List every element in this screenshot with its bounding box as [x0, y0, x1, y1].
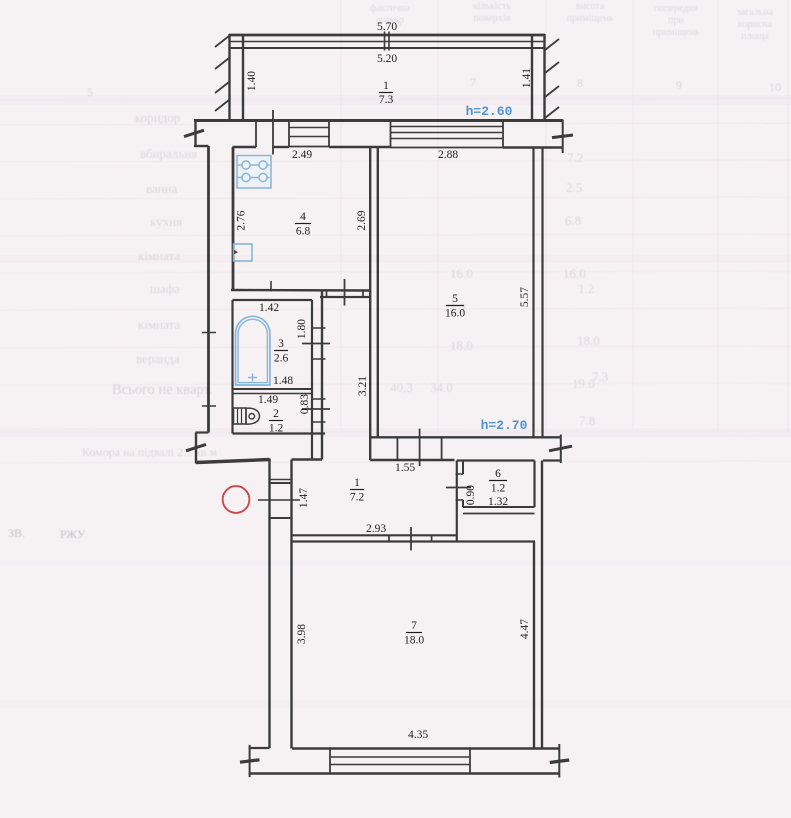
svg-text:1.48: 1.48 [273, 375, 293, 387]
svg-text:6.8: 6.8 [296, 226, 311, 238]
svg-text:1.42: 1.42 [259, 302, 279, 314]
svg-text:коридор: коридор [135, 110, 180, 125]
svg-text:приміщень: приміщень [567, 13, 614, 24]
svg-text:2.5: 2.5 [566, 180, 582, 195]
svg-text:16.0: 16.0 [445, 308, 465, 320]
svg-text:1.2: 1.2 [491, 483, 506, 495]
svg-text:шафа: шафа [150, 281, 180, 296]
svg-text:19.0: 19.0 [572, 376, 595, 391]
svg-text:0.90: 0.90 [465, 485, 477, 505]
svg-text:кількість: кількість [473, 1, 512, 12]
svg-text:фактична: фактична [370, 3, 411, 14]
svg-text:8: 8 [577, 76, 583, 90]
svg-text:вбиральня: вбиральня [140, 146, 197, 161]
svg-text:34.0: 34.0 [430, 380, 453, 395]
svg-text:висота: висота [576, 1, 605, 12]
svg-text:5.70: 5.70 [377, 21, 397, 33]
svg-text:1.2: 1.2 [269, 423, 284, 435]
svg-text:h=2.60: h=2.60 [466, 104, 513, 119]
svg-text:кімната: кімната [138, 317, 180, 332]
svg-text:кімната: кімната [138, 248, 180, 263]
svg-text:4: 4 [300, 211, 306, 223]
svg-text:0.83: 0.83 [299, 394, 311, 414]
svg-text:1.2: 1.2 [578, 281, 594, 296]
svg-text:1: 1 [383, 80, 389, 92]
svg-text:3.21: 3.21 [357, 376, 369, 396]
svg-text:2.6: 2.6 [274, 353, 289, 365]
svg-text:1.49: 1.49 [258, 394, 278, 406]
svg-text:2: 2 [273, 408, 279, 420]
svg-text:7.2: 7.2 [567, 150, 583, 165]
svg-text:5: 5 [452, 293, 458, 305]
svg-text:Всього не кварт.: Всього не кварт. [112, 382, 212, 398]
svg-text:7: 7 [470, 75, 476, 89]
svg-text:3.98: 3.98 [296, 624, 308, 644]
svg-text:поверхів: поверхів [474, 13, 511, 24]
svg-text:5.57: 5.57 [519, 287, 531, 307]
svg-text:5: 5 [87, 85, 93, 99]
svg-text:6: 6 [495, 468, 501, 480]
svg-text:площа: площа [741, 31, 769, 42]
svg-text:4.47: 4.47 [519, 619, 531, 639]
svg-text:4.35: 4.35 [408, 729, 428, 741]
svg-text:18.0: 18.0 [577, 333, 600, 348]
svg-text:9: 9 [676, 78, 682, 92]
svg-text:при: при [668, 15, 684, 26]
svg-text:40,3: 40,3 [390, 380, 413, 395]
svg-text:РЖУ: РЖУ [60, 527, 86, 541]
svg-text:ванна: ванна [146, 181, 178, 196]
svg-text:7.3: 7.3 [379, 94, 394, 106]
svg-text:веранда: веранда [136, 351, 180, 366]
svg-text:ЗВ.: ЗВ. [8, 526, 25, 540]
svg-text:1.32: 1.32 [488, 496, 508, 508]
svg-text:5.20: 5.20 [377, 53, 397, 65]
svg-text:1.41: 1.41 [521, 68, 533, 88]
svg-text:2.49: 2.49 [292, 149, 312, 161]
svg-text:попередня: попередня [654, 3, 699, 14]
svg-text:1.47: 1.47 [298, 488, 310, 508]
svg-text:18.0: 18.0 [404, 635, 424, 647]
svg-text:16.0: 16.0 [563, 266, 586, 281]
svg-text:1.55: 1.55 [395, 462, 415, 474]
svg-text:2.88: 2.88 [438, 149, 458, 161]
svg-text:1: 1 [354, 477, 360, 489]
svg-text:кухня: кухня [150, 214, 182, 229]
svg-text:18.0: 18.0 [450, 338, 473, 353]
svg-text:3: 3 [278, 338, 284, 350]
svg-text:2.93: 2.93 [366, 523, 386, 535]
svg-text:16.0: 16.0 [450, 266, 473, 281]
svg-text:загальна: загальна [737, 7, 774, 18]
svg-text:10: 10 [769, 80, 781, 94]
svg-text:6.8: 6.8 [565, 213, 581, 228]
svg-text:приміщень: приміщень [653, 27, 700, 38]
svg-text:7.8: 7.8 [579, 413, 595, 428]
svg-text:h=2.70: h=2.70 [481, 418, 528, 433]
svg-text:2.76: 2.76 [236, 210, 248, 230]
svg-text:1.40: 1.40 [246, 71, 258, 91]
svg-text:7: 7 [411, 620, 417, 632]
svg-text:корисна: корисна [738, 19, 772, 30]
svg-text:2.69: 2.69 [356, 210, 368, 230]
svg-text:1.80: 1.80 [296, 319, 308, 339]
svg-text:7.2: 7.2 [350, 492, 365, 504]
